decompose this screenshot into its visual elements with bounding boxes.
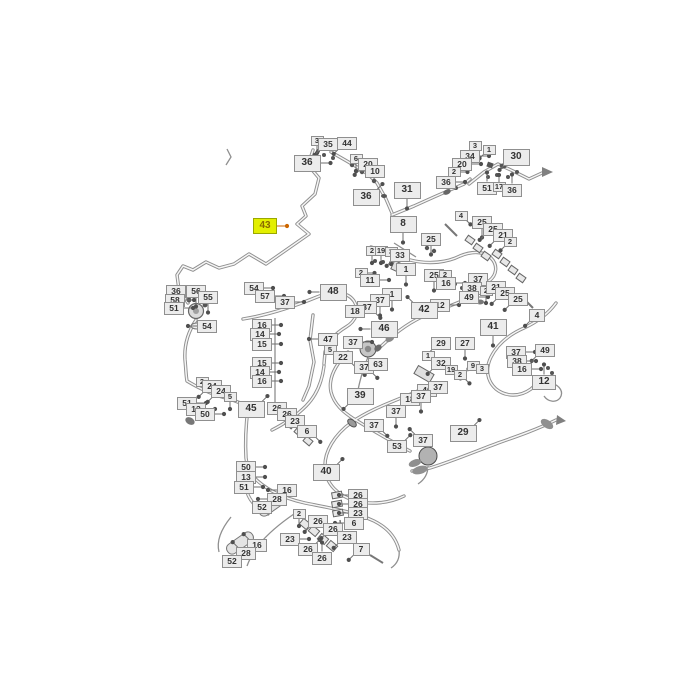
- fastener-dot: [503, 308, 507, 312]
- part-callout-6[interactable]: 6: [297, 425, 317, 438]
- part-callout-2[interactable]: 2: [454, 370, 467, 380]
- part-shape: [508, 265, 518, 275]
- part-callout-52[interactable]: 52: [252, 501, 272, 514]
- part-callout-45[interactable]: 45: [238, 401, 265, 418]
- part-callout-30[interactable]: 30: [503, 149, 530, 166]
- fastener-dot: [385, 434, 389, 438]
- part-shape: [303, 436, 313, 446]
- fastener-dot: [457, 303, 461, 307]
- part-callout-51[interactable]: 51: [164, 302, 184, 315]
- part-callout-15[interactable]: 15: [252, 338, 272, 351]
- fastener-dot: [370, 261, 374, 265]
- fastener-dot: [490, 302, 494, 306]
- diagram-canvas: 3354436620103631438253134202363051173621…: [0, 0, 700, 700]
- part-callout-3[interactable]: 3: [476, 364, 489, 374]
- part-shape: [365, 346, 371, 352]
- part-callout-2[interactable]: 2: [504, 237, 517, 247]
- fastener-dot: [408, 433, 412, 437]
- fastener-dot: [370, 340, 374, 344]
- fastener-dot: [394, 424, 398, 428]
- fastener-dot: [285, 224, 289, 228]
- fastener-dot: [192, 298, 196, 302]
- part-shape: [546, 366, 550, 370]
- fastener-dot: [266, 488, 270, 492]
- fastener-dot: [419, 409, 423, 413]
- fastener-dot: [375, 376, 379, 380]
- part-shape: [506, 175, 510, 179]
- part-callout-22[interactable]: 22: [333, 351, 353, 364]
- part-callout-4[interactable]: 4: [529, 309, 545, 322]
- fastener-dot: [484, 301, 488, 305]
- fastener-dot: [378, 316, 382, 320]
- part-callout-52[interactable]: 52: [222, 555, 242, 568]
- part-callout-16[interactable]: 16: [512, 363, 532, 376]
- fastener-dot: [328, 161, 332, 165]
- part-callout-36[interactable]: 36: [502, 184, 522, 197]
- part-callout-48[interactable]: 48: [320, 284, 347, 301]
- part-callout-41[interactable]: 41: [480, 319, 507, 336]
- fastener-dot: [242, 532, 246, 536]
- fastener-dot: [358, 327, 362, 331]
- fastener-dot: [263, 475, 267, 479]
- part-callout-27[interactable]: 27: [455, 337, 475, 350]
- fastener-dot: [463, 180, 467, 184]
- part-shape: [515, 170, 519, 174]
- part-callout-37[interactable]: 37: [386, 405, 406, 418]
- fastener-dot: [405, 295, 409, 299]
- fastener-dot: [405, 206, 409, 210]
- tube-path: [226, 149, 231, 165]
- fastener-dot: [534, 359, 538, 363]
- fastener-dot: [319, 536, 323, 540]
- fastener-dot: [467, 381, 471, 385]
- fastener-dot: [390, 307, 394, 311]
- part-callout-16[interactable]: 16: [252, 375, 272, 388]
- fastener-dot: [510, 172, 514, 176]
- fastener-dot: [491, 343, 495, 347]
- part-callout-25[interactable]: 25: [508, 293, 528, 306]
- part-callout-18[interactable]: 18: [345, 305, 365, 318]
- part-shape: [445, 224, 457, 236]
- part-callout-26[interactable]: 26: [312, 552, 332, 565]
- part-callout-16[interactable]: 16: [436, 277, 456, 290]
- fastener-dot: [337, 511, 341, 515]
- fastener-dot: [307, 537, 311, 541]
- fastener-dot: [228, 407, 232, 411]
- fastener-dot: [222, 412, 226, 416]
- fastener-dot: [353, 173, 357, 177]
- fastener-dot: [332, 152, 336, 156]
- fastener-dot: [340, 457, 344, 461]
- fastener-dot: [197, 395, 201, 399]
- fastener-dot: [463, 356, 467, 360]
- fastener-dot: [497, 173, 501, 177]
- part-shape: [516, 273, 526, 283]
- part-callout-63[interactable]: 63: [368, 358, 388, 371]
- part-shape: [425, 246, 429, 250]
- part-callout-37[interactable]: 37: [364, 419, 384, 432]
- fastener-dot: [265, 394, 269, 398]
- fastener-dot: [307, 337, 311, 341]
- fastener-dot: [347, 558, 351, 562]
- part-callout-47[interactable]: 47: [318, 333, 338, 346]
- fastener-dot: [523, 324, 527, 328]
- fastener-dot: [408, 427, 412, 431]
- fastener-dot: [542, 362, 546, 366]
- fastener-dot: [318, 440, 322, 444]
- fastener-dot: [303, 530, 307, 534]
- part-shape: [370, 555, 383, 563]
- fastener-dot: [385, 264, 389, 268]
- fastener-dot: [426, 372, 430, 376]
- part-shape: [539, 417, 555, 432]
- part-callout-37[interactable]: 37: [428, 381, 448, 394]
- tube-path: [177, 150, 319, 303]
- part-callout-29[interactable]: 29: [450, 425, 477, 442]
- fastener-dot: [341, 407, 345, 411]
- part-callout-37[interactable]: 37: [413, 434, 433, 447]
- fastener-dot: [263, 465, 267, 469]
- part-shape: [432, 249, 436, 253]
- fastener-dot: [297, 524, 301, 528]
- part-callout-1[interactable]: 1: [396, 263, 416, 276]
- part-callout-25[interactable]: 25: [421, 233, 441, 246]
- part-shape: [465, 235, 475, 245]
- fastener-dot: [387, 278, 391, 282]
- part-callout-40[interactable]: 40: [313, 464, 340, 481]
- fastener-dot: [497, 168, 501, 172]
- fastener-dot: [261, 485, 265, 489]
- part-callout-42[interactable]: 42: [411, 302, 438, 319]
- fastener-dot: [320, 540, 324, 544]
- part-callout-49[interactable]: 49: [459, 291, 479, 304]
- fastener-dot: [277, 370, 281, 374]
- fastener-dot: [279, 379, 283, 383]
- fastener-dot: [332, 546, 336, 550]
- fastener-dot: [380, 182, 384, 186]
- fastener-dot: [379, 261, 383, 265]
- fastener-dot: [279, 361, 283, 365]
- part-callout-54[interactable]: 54: [197, 320, 217, 333]
- fastener-dot: [429, 252, 433, 256]
- part-callout-6[interactable]: 6: [344, 517, 364, 530]
- fastener-dot: [401, 240, 405, 244]
- part-callout-5[interactable]: 5: [224, 392, 237, 402]
- fastener-dot: [337, 493, 341, 497]
- fastener-dot: [479, 162, 483, 166]
- flow-arrow: [542, 167, 553, 177]
- part-callout-37[interactable]: 37: [275, 296, 295, 309]
- fastener-dot: [539, 367, 543, 371]
- part-callout-55[interactable]: 55: [198, 291, 218, 304]
- fastener-dot: [465, 170, 469, 174]
- fastener-dot: [488, 244, 492, 248]
- part-shape: [381, 194, 387, 198]
- part-callout-39[interactable]: 39: [347, 388, 374, 405]
- part-callout-36[interactable]: 36: [353, 189, 380, 206]
- fastener-dot: [404, 282, 408, 286]
- fastener-dot: [485, 170, 489, 174]
- part-callout-57[interactable]: 57: [255, 290, 275, 303]
- part-callout-35[interactable]: 35: [318, 138, 338, 151]
- part-callout-31[interactable]: 31: [394, 182, 421, 199]
- fastener-dot: [337, 502, 341, 506]
- part-callout-36[interactable]: 36: [436, 176, 456, 189]
- part-callout-51[interactable]: 51: [234, 481, 254, 494]
- part-callout-37[interactable]: 37: [411, 390, 431, 403]
- fastener-dot: [206, 310, 210, 314]
- fastener-dot: [186, 324, 190, 328]
- part-shape: [500, 257, 510, 267]
- part-callout-49[interactable]: 49: [535, 344, 555, 357]
- part-callout-11[interactable]: 11: [360, 274, 380, 287]
- fastener-dot: [307, 290, 311, 294]
- fastener-dot: [279, 342, 283, 346]
- part-callout-50[interactable]: 50: [195, 408, 215, 421]
- fastener-dot: [498, 248, 502, 252]
- flow-arrow: [556, 415, 566, 425]
- part-callout-36[interactable]: 36: [294, 155, 321, 172]
- part-callout-2[interactable]: 2: [293, 509, 306, 519]
- fastener-dot: [478, 238, 482, 242]
- part-callout-46[interactable]: 46: [371, 321, 398, 338]
- part-shape: [331, 156, 335, 160]
- part-shape: [372, 179, 376, 183]
- part-callout-53[interactable]: 53: [387, 440, 407, 453]
- fastener-dot: [231, 540, 235, 544]
- part-shape: [419, 447, 437, 465]
- part-callout-23[interactable]: 23: [280, 533, 300, 546]
- part-callout-44[interactable]: 44: [337, 137, 357, 150]
- fastener-dot: [302, 300, 306, 304]
- part-callout-33[interactable]: 33: [390, 249, 410, 262]
- part-callout-7[interactable]: 7: [353, 543, 370, 556]
- fastener-dot: [477, 418, 481, 422]
- fastener-dot: [277, 332, 281, 336]
- fastener-dot: [279, 323, 283, 327]
- part-callout-12[interactable]: 12: [532, 375, 556, 390]
- part-callout-1[interactable]: 1: [483, 145, 496, 155]
- fastener-dot: [191, 306, 195, 310]
- part-callout-43[interactable]: 43: [253, 218, 277, 234]
- part-callout-29[interactable]: 29: [431, 337, 451, 350]
- tube-path: [391, 550, 399, 568]
- part-callout-8[interactable]: 8: [390, 216, 417, 233]
- part-callout-37[interactable]: 37: [343, 336, 363, 349]
- part-callout-4[interactable]: 4: [455, 211, 468, 221]
- part-callout-10[interactable]: 10: [365, 165, 385, 178]
- part-shape: [322, 153, 326, 157]
